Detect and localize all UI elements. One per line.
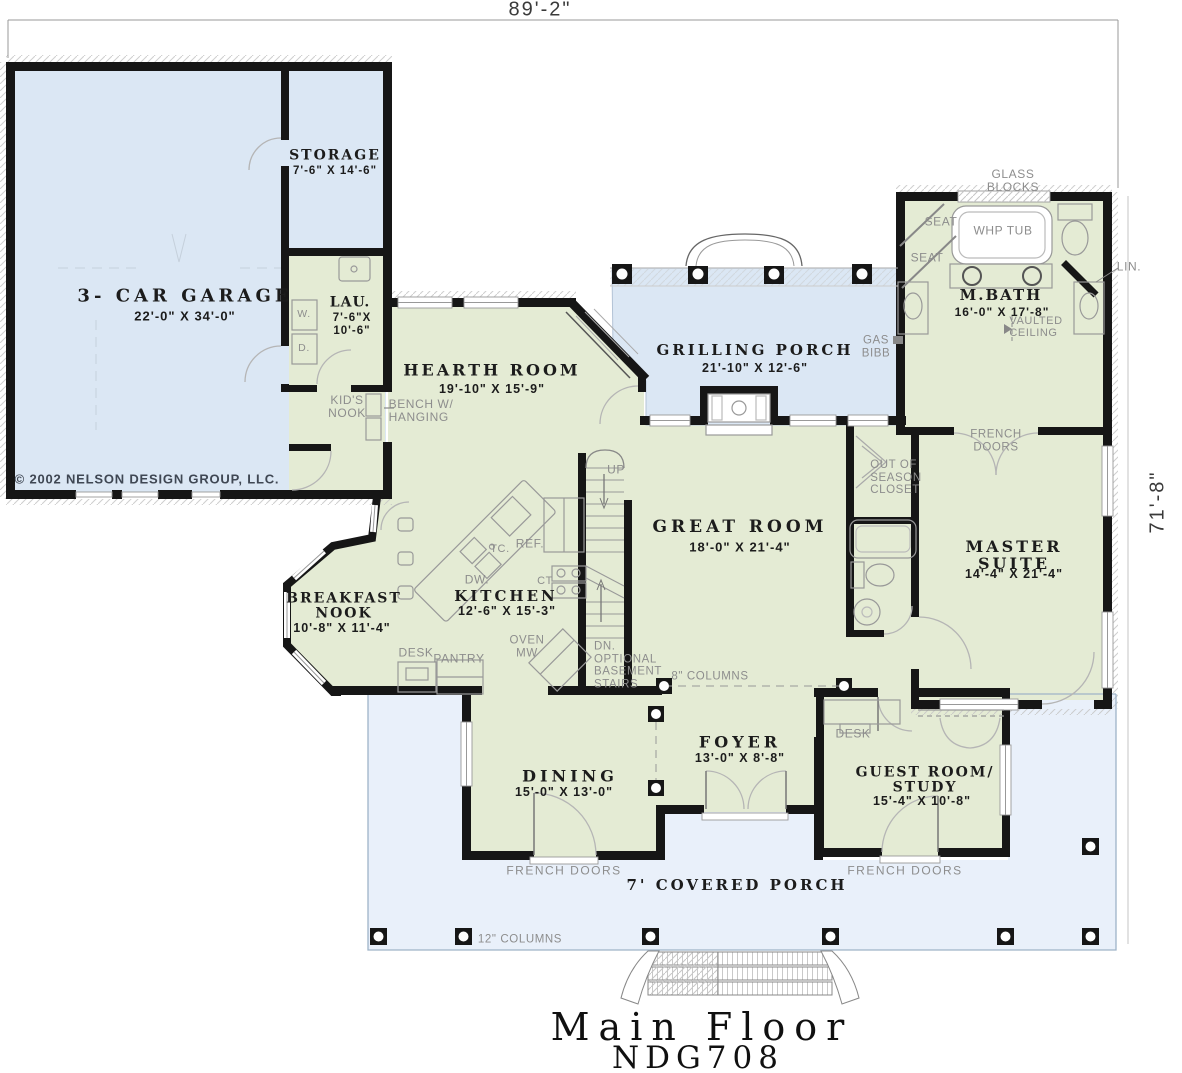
floorplan-drawing [0, 0, 1182, 1073]
floor-plan-page: 89'-2" 71'-8" 3- CAR GARAGE 22'-0" X 34'… [0, 0, 1182, 1073]
entry-steps [621, 951, 859, 1004]
glass-block-window [958, 191, 1050, 202]
